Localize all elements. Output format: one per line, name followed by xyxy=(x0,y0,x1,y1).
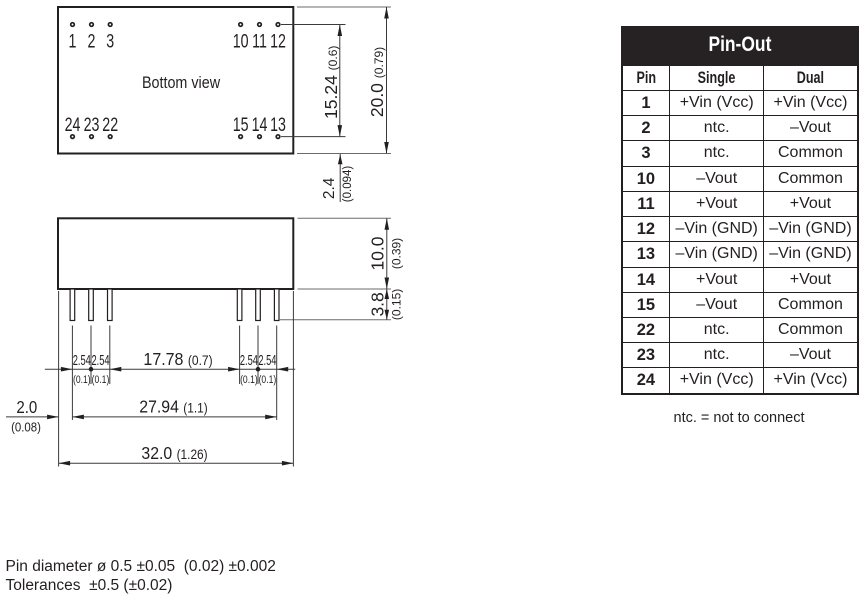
svg-text:10.0: 10.0 xyxy=(368,236,388,270)
svg-text:15.24 (0.6): 15.24 (0.6) xyxy=(321,46,341,119)
svg-text:10: 10 xyxy=(233,31,249,53)
svg-text:(0.1): (0.1) xyxy=(240,374,258,386)
svg-text:32.0 (1.26): 32.0 (1.26) xyxy=(141,443,207,463)
svg-text:(0.094): (0.094) xyxy=(342,166,354,203)
svg-text:14: 14 xyxy=(252,114,268,136)
svg-text:20.0 (0.79): 20.0 (0.79) xyxy=(367,47,387,117)
svg-text:12: 12 xyxy=(270,31,286,53)
svg-text:11: 11 xyxy=(252,31,267,53)
svg-text:2.4: 2.4 xyxy=(321,177,338,199)
svg-text:2.54: 2.54 xyxy=(240,352,258,369)
svg-text:2: 2 xyxy=(88,31,96,53)
svg-text:15: 15 xyxy=(233,114,249,136)
svg-text:(0.08): (0.08) xyxy=(11,420,41,435)
svg-text:(0.1): (0.1) xyxy=(73,374,91,386)
svg-text:(0.1): (0.1) xyxy=(92,374,110,386)
svg-text:(0.1): (0.1) xyxy=(259,374,277,386)
svg-text:2.54: 2.54 xyxy=(73,352,91,369)
svg-text:27.94 (1.1): 27.94 (1.1) xyxy=(139,397,207,417)
svg-text:22: 22 xyxy=(102,114,118,136)
svg-text:(0.15): (0.15) xyxy=(390,289,404,320)
svg-text:3: 3 xyxy=(106,31,114,53)
svg-text:Bottom view: Bottom view xyxy=(142,74,221,92)
svg-text:17.78 (0.7): 17.78 (0.7) xyxy=(143,349,212,369)
svg-text:24: 24 xyxy=(65,114,81,136)
svg-text:1: 1 xyxy=(69,31,77,53)
svg-text:2.54: 2.54 xyxy=(91,352,109,369)
svg-text:23: 23 xyxy=(84,114,100,136)
svg-text:13: 13 xyxy=(270,114,286,136)
svg-text:3.8: 3.8 xyxy=(368,292,388,316)
svg-text:2.0: 2.0 xyxy=(16,398,37,417)
svg-text:(0.39): (0.39) xyxy=(390,238,404,269)
svg-text:2.54: 2.54 xyxy=(258,352,276,369)
